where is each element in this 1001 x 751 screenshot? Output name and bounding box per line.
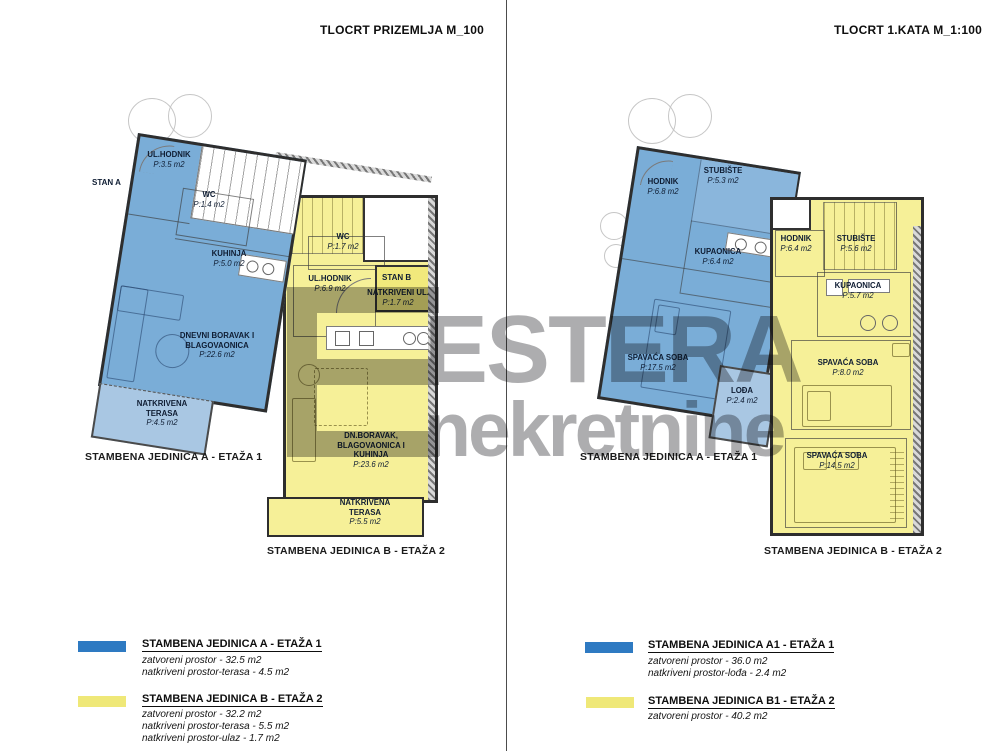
stan-b-label: STAN B	[382, 273, 411, 282]
hob	[261, 262, 275, 276]
legend-title: STAMBENA JEDINICA A - ETAŽA 1	[142, 638, 322, 652]
pillow	[654, 304, 680, 335]
exterior-wall	[428, 198, 435, 500]
legend-title: STAMBENA JEDINICA A1 - ETAŽA 1	[648, 639, 834, 653]
legend-line: natkriveni prostor-terasa - 5.5 m2	[142, 721, 289, 732]
legend-swatch-unit-a1	[585, 642, 633, 653]
dining-table	[314, 368, 368, 426]
left-plan-unit-a-shape	[98, 133, 307, 413]
room-label: KUPAONICA P:6.4 m2	[695, 247, 742, 266]
room-spavaca-1	[791, 340, 911, 430]
legend-line: natkriveni prostor-lođa - 2.4 m2	[648, 668, 786, 679]
room-label: HODNIK P:6.4 m2	[780, 234, 811, 253]
room-label: SPAVAĆA SOBA P:8.0 m2	[818, 358, 879, 377]
kitchen-counter	[326, 326, 432, 350]
tree-outline	[668, 94, 712, 138]
room-label: STUBIŠTE P:5.3 m2	[704, 166, 743, 185]
room-label: STUBIŠTE P:5.6 m2	[837, 234, 876, 253]
nightstand	[892, 343, 910, 357]
left-caption-unit-b: STAMBENA JEDINICA B - ETAŽA 2	[267, 545, 445, 557]
pillow	[807, 391, 831, 421]
legend-line: natkriveni prostor-ulaz - 1.7 m2	[142, 733, 280, 744]
legend-line: zatvoreni prostor - 36.0 m2	[648, 656, 768, 667]
hob	[246, 260, 260, 274]
bed	[802, 385, 892, 427]
legend-swatch-unit-b	[78, 696, 126, 707]
toilet	[860, 315, 876, 331]
left-plan-title: TLOCRT PRIZEMLJA M_100	[320, 23, 484, 37]
left-caption-unit-a: STAMBENA JEDINICA A - ETAŽA 1	[85, 451, 262, 463]
legend-swatch-unit-a	[78, 641, 126, 652]
room-label: NATKRIVENI UL. P:1.7 m2	[367, 288, 429, 307]
exterior-wall	[913, 226, 921, 533]
room-label: HODNIK P:6.8 m2	[647, 177, 678, 196]
bidet	[882, 315, 898, 331]
sink	[359, 331, 374, 346]
tree-outline	[168, 94, 212, 138]
room-label: SPAVAĆA SOBA P:14.5 m2	[807, 451, 868, 470]
room-label: KUPAONICA P:5.7 m2	[835, 281, 882, 300]
legend-line: zatvoreni prostor - 40.2 m2	[648, 711, 768, 722]
room-label: UL.HODNIK P:3.5 m2	[147, 150, 190, 169]
legend-line: zatvoreni prostor - 32.5 m2	[142, 655, 262, 666]
legend-swatch-unit-b1	[586, 697, 634, 708]
sink	[335, 331, 350, 346]
wardrobe	[890, 449, 904, 519]
floorplan-document: TLOCRT PRIZEMLJA M_100 TLOCRT 1.KATA M_1…	[0, 0, 1001, 751]
right-caption-unit-a: STAMBENA JEDINICA A - ETAŽA 1	[580, 451, 757, 463]
room-label: SPAVAĆA SOBA P:17.5 m2	[628, 353, 689, 372]
hob	[403, 332, 416, 345]
room-label: NATKRIVENA TERASA P:4.5 m2	[131, 399, 193, 428]
sink	[754, 241, 768, 255]
room-label: LOĐA P:2.4 m2	[726, 386, 757, 405]
right-plan-loggia	[708, 365, 779, 447]
legend-line: zatvoreni prostor - 32.2 m2	[142, 709, 262, 720]
legend-line: natkriveni prostor-terasa - 4.5 m2	[142, 667, 289, 678]
room-label: WC P:1.4 m2	[193, 190, 224, 209]
right-plan-title: TLOCRT 1.KATA M_1:100	[834, 23, 982, 37]
room-label: UL.HODNIK P:6.9 m2	[308, 274, 351, 293]
wall	[680, 220, 692, 292]
room-label: KUHINJA P:5.0 m2	[212, 249, 247, 268]
sofa	[292, 398, 316, 462]
room-label: DNEVNI BORAVAK I BLAGOVAONICA P:22.6 m2	[169, 331, 265, 360]
stan-a-label: STAN A	[92, 178, 121, 187]
legend-title: STAMBENA JEDINICA B - ETAŽA 2	[142, 693, 323, 707]
room-label: WC P:1.7 m2	[327, 232, 358, 251]
room-label: DN.BORAVAK, BLAGOVAONICA I KUHINJA P:23.…	[331, 431, 411, 470]
page-divider	[506, 0, 507, 751]
plant	[298, 364, 320, 386]
room-label: NATKRIVENA TERASA P:5.5 m2	[334, 498, 396, 527]
legend-title: STAMBENA JEDINICA B1 - ETAŽA 2	[648, 695, 835, 709]
right-caption-unit-b: STAMBENA JEDINICA B - ETAŽA 2	[764, 545, 942, 557]
landing-void	[773, 200, 811, 230]
